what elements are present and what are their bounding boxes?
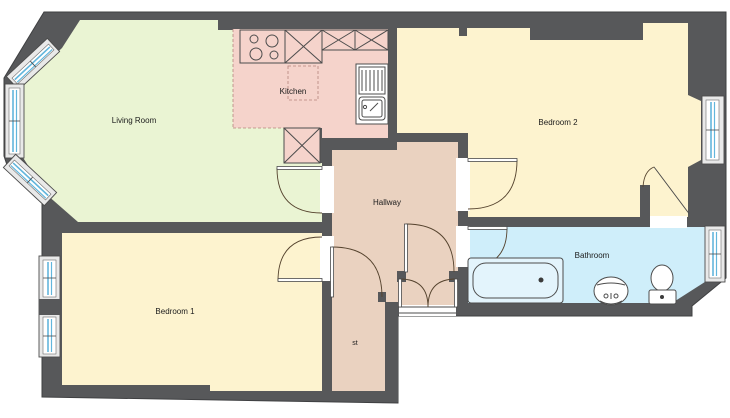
room-store <box>332 300 385 391</box>
bedroom1-door-leaf <box>278 279 322 282</box>
label-hallway: Hallway <box>373 198 401 207</box>
wall-stub-closet <box>640 185 650 227</box>
label-kitchen: Kitchen <box>280 87 307 96</box>
store-door-leaf <box>331 247 334 297</box>
bay-window-middle-panel <box>5 84 24 158</box>
entrance-right-door-leaf <box>455 279 458 307</box>
floor-plan: Living Room Kitchen Bedroom 2 Bedroom 1 … <box>0 0 730 418</box>
bathtub-icon <box>468 258 563 303</box>
label-bathroom: Bathroom <box>575 251 610 260</box>
opening-living-room <box>320 166 334 213</box>
wall-stub-bedroom2-top <box>459 28 467 36</box>
corner-cabinet-x-icon <box>284 128 320 163</box>
label-store: st <box>352 340 358 347</box>
label-bedroom-2: Bedroom 2 <box>538 118 578 127</box>
bedroom2-door-leaf <box>468 159 517 162</box>
label-living-room: Living Room <box>112 116 157 125</box>
bathroom-window <box>705 226 725 282</box>
label-bedroom-1: Bedroom 1 <box>155 307 195 316</box>
living-room-door-leaf <box>277 167 322 170</box>
room-hallway <box>332 142 458 306</box>
inner-hall-door-leaf <box>405 224 408 272</box>
bathroom-door-leaf <box>468 227 507 230</box>
bedroom2-window <box>702 96 724 164</box>
opening-closet <box>650 216 687 228</box>
entrance-left-door-leaf <box>399 279 402 307</box>
opening-bedroom2 <box>456 158 470 211</box>
pedestal-basin-icon <box>594 277 628 305</box>
wall-store-right <box>385 302 398 402</box>
kitchen-sink-icon <box>356 64 388 124</box>
floor-plan-svg: Living Room Kitchen Bedroom 2 Bedroom 1 … <box>0 0 730 418</box>
bedroom1-window <box>39 256 60 357</box>
